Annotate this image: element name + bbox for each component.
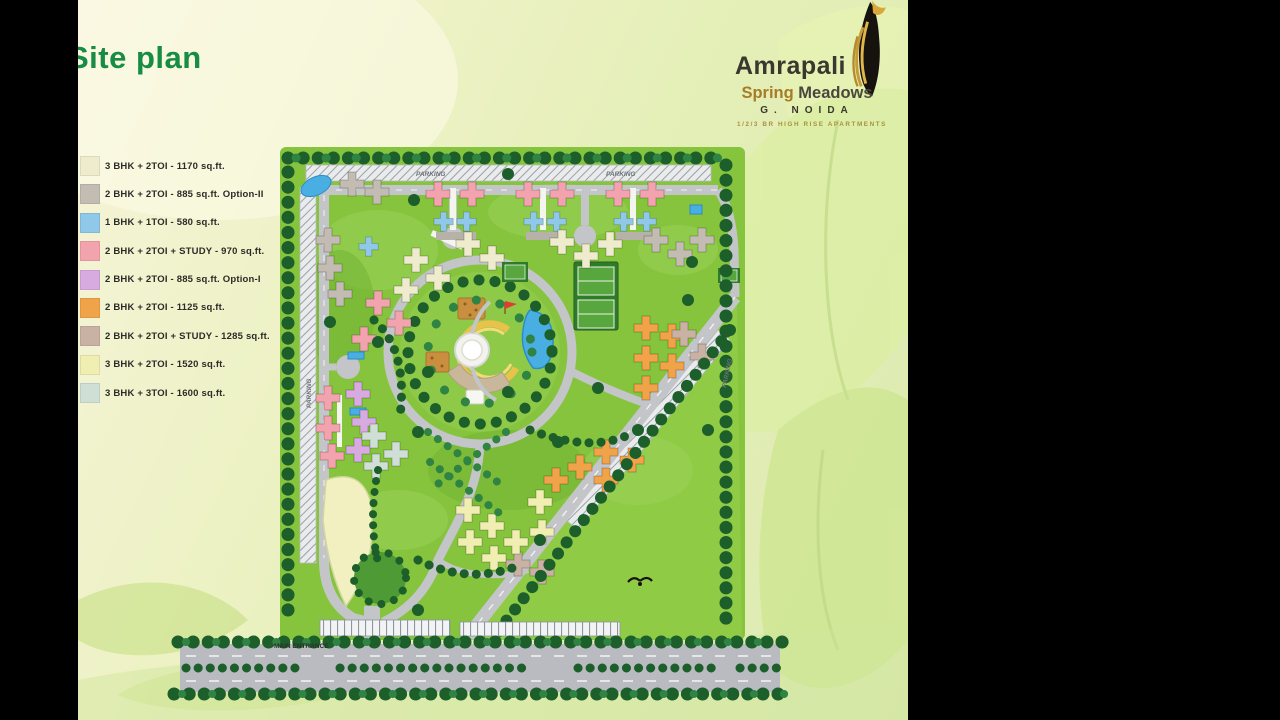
legend-item: 2 BHK + 2TOI - 885 sq.ft. Option-II: [80, 184, 270, 204]
brand-name: Amrapali: [735, 52, 846, 81]
legend-label: 1 BHK + 1TOI - 580 sq.ft.: [105, 217, 220, 228]
legend-item: 2 BHK + 2TOI - 1125 sq.ft.: [80, 298, 270, 318]
legend-swatch: [80, 298, 100, 318]
legend-label: 2 BHK + 2TOI - 1125 sq.ft.: [105, 302, 225, 313]
legend-swatch: [80, 184, 100, 204]
project-name-first: Spring: [741, 84, 793, 102]
parking-label-top-1: PARKING: [416, 171, 446, 178]
legend-item: 3 BHK + 2TOI - 1170 sq.ft.: [80, 156, 270, 176]
legend-swatch: [80, 213, 100, 233]
legend-label: 3 BHK + 2TOI - 1520 sq.ft.: [105, 359, 225, 370]
legend-item: 3 BHK + 2TOI - 1520 sq.ft.: [80, 355, 270, 375]
legend-swatch: [80, 156, 100, 176]
legend-item: 2 BHK + 2TOI + STUDY - 1285 sq.ft.: [80, 326, 270, 346]
legend-label: 2 BHK + 2TOI - 885 sq.ft. Option-II: [105, 189, 264, 200]
parking-label-left: PARKING: [306, 379, 313, 409]
brand-logo: Amrapali Spring Meadows G. NOIDA 1/2/3 B…: [723, 0, 908, 140]
legend-item: 1 BHK + 1TOI - 580 sq.ft.: [80, 213, 270, 233]
legend-item: 3 BHK + 3TOI - 1600 sq.ft.: [80, 383, 270, 403]
legend-label: 2 BHK + 2TOI + STUDY - 1285 sq.ft.: [105, 331, 270, 342]
project-name: Spring Meadows: [723, 84, 891, 103]
page-title: Site plan: [78, 40, 202, 76]
parking-label-top-2: PARKING: [606, 171, 636, 178]
legend-swatch: [80, 241, 100, 261]
project-city: G. NOIDA: [723, 105, 891, 116]
main-entrance-label: MAIN ENTRANCE: [274, 643, 329, 650]
central-park: [400, 272, 560, 432]
legend-label: 3 BHK + 2TOI - 1170 sq.ft.: [105, 161, 225, 172]
video-frame: PARKING PARKING PARKING PARKING MAIN ENT…: [0, 0, 1280, 720]
slide-content: PARKING PARKING PARKING PARKING MAIN ENT…: [78, 0, 908, 720]
legend-swatch: [80, 383, 100, 403]
legend-label: 2 BHK + 2TOI - 885 sq.ft. Option-I: [105, 274, 261, 285]
legend-label: 3 BHK + 3TOI - 1600 sq.ft.: [105, 388, 225, 399]
legend-label: 2 BHK + 2TOI + STUDY - 970 sq.ft.: [105, 246, 264, 257]
legend-swatch: [80, 326, 100, 346]
project-tagline: 1/2/3 BR HIGH RISE APARTMENTS: [723, 121, 901, 128]
legend-item: 2 BHK + 2TOI - 885 sq.ft. Option-I: [80, 270, 270, 290]
unit-legend: 3 BHK + 2TOI - 1170 sq.ft. 2 BHK + 2TOI …: [80, 156, 270, 412]
legend-item: 2 BHK + 2TOI + STUDY - 970 sq.ft.: [80, 241, 270, 261]
legend-swatch: [80, 355, 100, 375]
project-name-second: Meadows: [798, 84, 872, 102]
legend-swatch: [80, 270, 100, 290]
